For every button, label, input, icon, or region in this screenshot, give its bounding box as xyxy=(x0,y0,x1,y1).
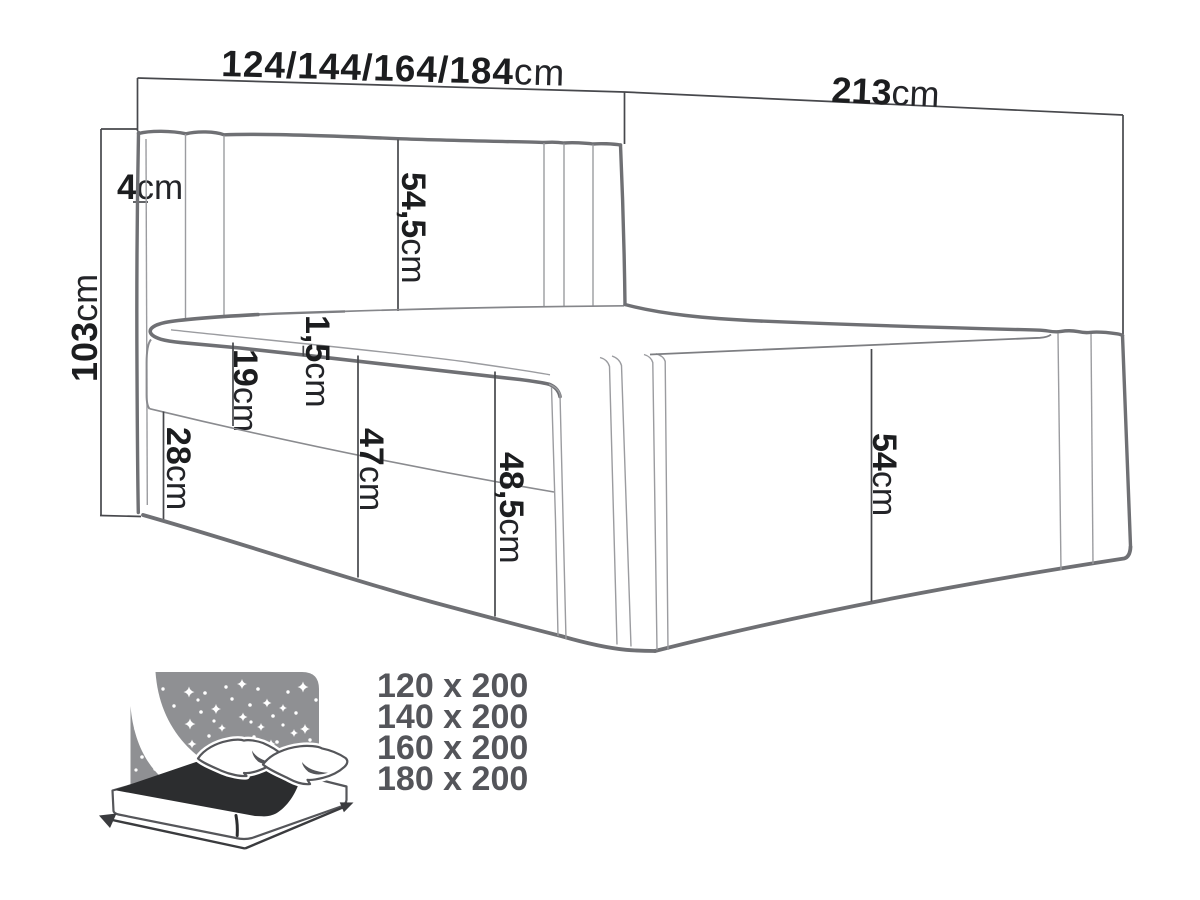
svg-text:28cm: 28cm xyxy=(159,427,197,510)
svg-text:1,5cm: 1,5cm xyxy=(298,315,336,408)
svg-text:54cm: 54cm xyxy=(865,433,903,516)
svg-text:19cm: 19cm xyxy=(226,349,264,432)
svg-text:4cm: 4cm xyxy=(117,168,183,207)
svg-text:48,5cm: 48,5cm xyxy=(492,452,530,564)
svg-text:54,5cm: 54,5cm xyxy=(394,172,432,284)
svg-text:47cm: 47cm xyxy=(352,428,390,511)
svg-text:180 x 200: 180 x 200 xyxy=(377,760,528,798)
svg-text:213cm: 213cm xyxy=(831,69,941,115)
svg-text:103cm: 103cm xyxy=(64,274,105,382)
